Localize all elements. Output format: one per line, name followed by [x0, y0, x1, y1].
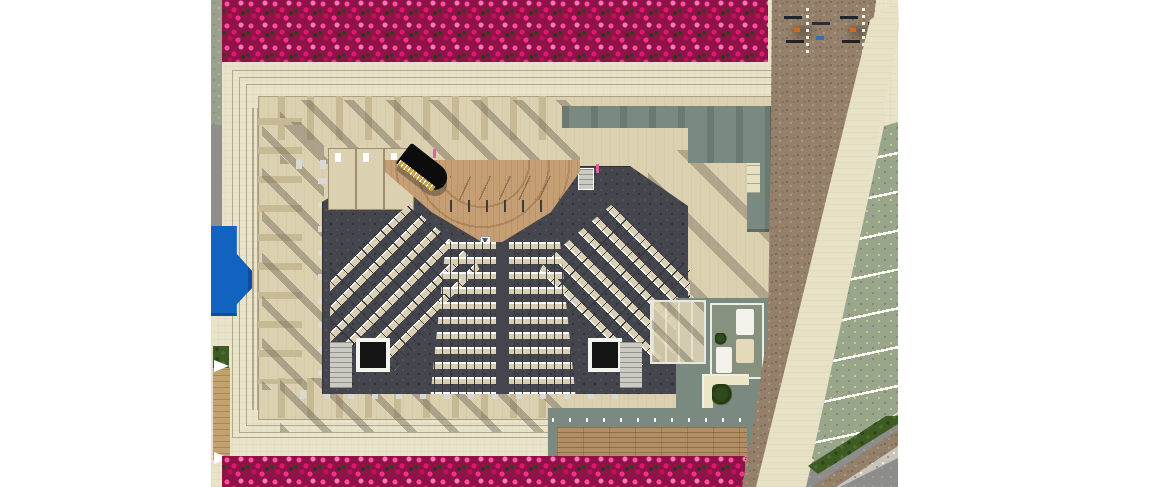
annex-pergola-room [650, 300, 706, 364]
stage-door-marker-left [433, 149, 436, 158]
lounge-plant [715, 333, 727, 345]
vestibule-right [588, 338, 622, 372]
flower-hedge-top [222, 0, 768, 62]
music-stand-shadows [450, 176, 560, 200]
west-road-strip [211, 125, 222, 228]
center-aisle [496, 242, 509, 394]
stair-patch-left [330, 342, 352, 388]
annex-lounge-room [710, 303, 764, 379]
deck-path-lights [552, 418, 756, 422]
seating-block-center [426, 242, 580, 394]
bike-rack-group-1 [782, 6, 834, 58]
lounge-bed-2 [736, 339, 754, 363]
lounge-bed-3 [716, 347, 732, 373]
stair-patch-right [620, 342, 642, 388]
music-stands [450, 200, 554, 212]
roof-cabinet [747, 163, 760, 193]
west-hedge-wall [211, 0, 222, 125]
lounge-bed-1 [736, 309, 754, 335]
colonnade-shadows-north [280, 100, 580, 164]
west-boardwalk [213, 368, 230, 460]
stage-side-stair-unit [578, 168, 594, 190]
site-plan-canvas [0, 0, 1169, 487]
stage-door-marker-right [596, 164, 599, 173]
flower-hedge-bottom [222, 456, 745, 487]
courtyard-tree [712, 384, 732, 406]
vestibule-left [356, 338, 390, 372]
